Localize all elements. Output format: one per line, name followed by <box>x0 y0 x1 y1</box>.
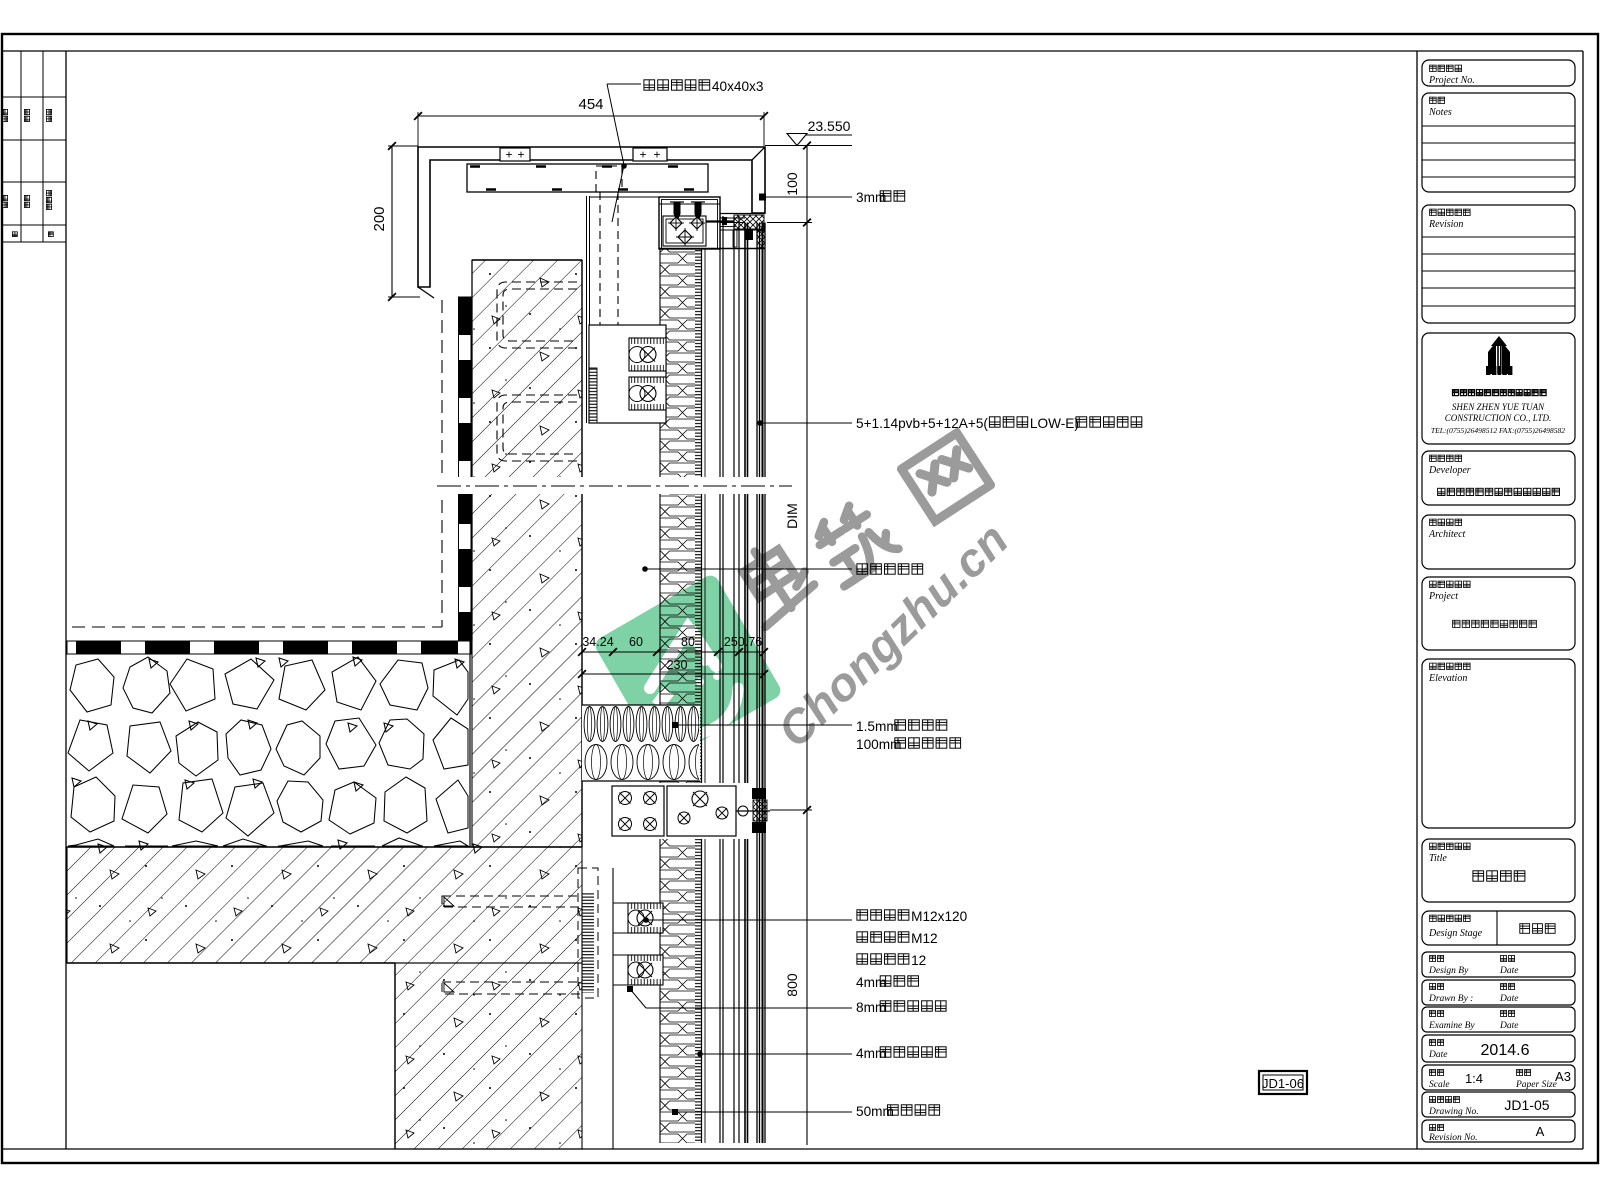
svg-text:Date: Date <box>1499 994 1518 1004</box>
svg-text:34.24: 34.24 <box>582 635 613 649</box>
svg-text:A: A <box>1536 1124 1545 1139</box>
svg-text:Date: Date <box>1428 1050 1447 1060</box>
svg-text:TEL:(0755)26498512 FAX:(0755): TEL:(0755)26498512 FAX:(0755)26498582 <box>1431 426 1565 435</box>
svg-text:50mm: 50mm <box>856 1104 894 1119</box>
svg-text:LOW-E): LOW-E) <box>1030 416 1079 431</box>
svg-text:Examine By: Examine By <box>1428 1021 1475 1031</box>
svg-text:1.5mm: 1.5mm <box>856 719 898 734</box>
svg-text:5+1.14pvb+5+12A+5(: 5+1.14pvb+5+12A+5( <box>856 416 988 431</box>
svg-text:+: + <box>639 148 646 162</box>
svg-text:454: 454 <box>578 96 603 113</box>
svg-text:1:4: 1:4 <box>1465 1071 1483 1086</box>
svg-text:230: 230 <box>667 658 688 672</box>
svg-text:Design By: Design By <box>1428 966 1469 976</box>
svg-text:80: 80 <box>681 635 695 649</box>
svg-text:Revision: Revision <box>1428 219 1463 230</box>
svg-text:100: 100 <box>784 172 800 196</box>
svg-text:M12: M12 <box>911 931 938 946</box>
svg-text:250.76: 250.76 <box>724 635 762 649</box>
svg-text:12: 12 <box>911 953 926 968</box>
svg-text:Date: Date <box>1499 1021 1518 1031</box>
svg-text:A3: A3 <box>1555 1069 1571 1084</box>
svg-text:4mm: 4mm <box>856 1046 886 1061</box>
svg-text:DIM: DIM <box>784 503 800 529</box>
svg-text:Drawn By :: Drawn By : <box>1428 994 1473 1004</box>
svg-text:Design Stage: Design Stage <box>1428 928 1483 939</box>
svg-text:8mm: 8mm <box>856 1000 886 1015</box>
svg-text:Architect: Architect <box>1428 529 1466 540</box>
svg-text:Project No.: Project No. <box>1428 75 1475 86</box>
svg-text:Paper Size: Paper Size <box>1515 1080 1557 1090</box>
svg-text:CONSTRUCTION CO., LTD.: CONSTRUCTION CO., LTD. <box>1445 413 1552 423</box>
svg-text:Project: Project <box>1428 591 1458 602</box>
svg-text:M12x120: M12x120 <box>911 909 968 924</box>
svg-text:Drawing No.: Drawing No. <box>1428 1107 1479 1117</box>
svg-text:Date: Date <box>1499 966 1518 976</box>
svg-text:+: + <box>653 148 660 162</box>
svg-text:Elevation: Elevation <box>1428 673 1467 684</box>
svg-text:800: 800 <box>784 973 800 997</box>
svg-text:+: + <box>505 148 512 162</box>
svg-text:2014.6: 2014.6 <box>1481 1042 1530 1059</box>
svg-text:4mm: 4mm <box>856 975 886 990</box>
svg-text:Revision No.: Revision No. <box>1428 1133 1478 1143</box>
svg-text:3mm: 3mm <box>856 190 886 205</box>
svg-text:23.550: 23.550 <box>808 118 851 134</box>
svg-text:+: + <box>517 148 524 162</box>
svg-text:Title: Title <box>1429 853 1447 864</box>
svg-text:200: 200 <box>371 206 388 231</box>
svg-text:60: 60 <box>629 635 643 649</box>
svg-text:SHEN ZHEN YUE TUAN: SHEN ZHEN YUE TUAN <box>1452 402 1545 412</box>
svg-text:Developer: Developer <box>1428 465 1471 476</box>
svg-text:Notes: Notes <box>1428 107 1452 118</box>
svg-text:JD1-06: JD1-06 <box>1262 1076 1304 1091</box>
svg-text:JD1-05: JD1-05 <box>1504 1097 1549 1113</box>
svg-text:40x40x3: 40x40x3 <box>712 79 764 94</box>
svg-text:Scale: Scale <box>1429 1080 1450 1090</box>
